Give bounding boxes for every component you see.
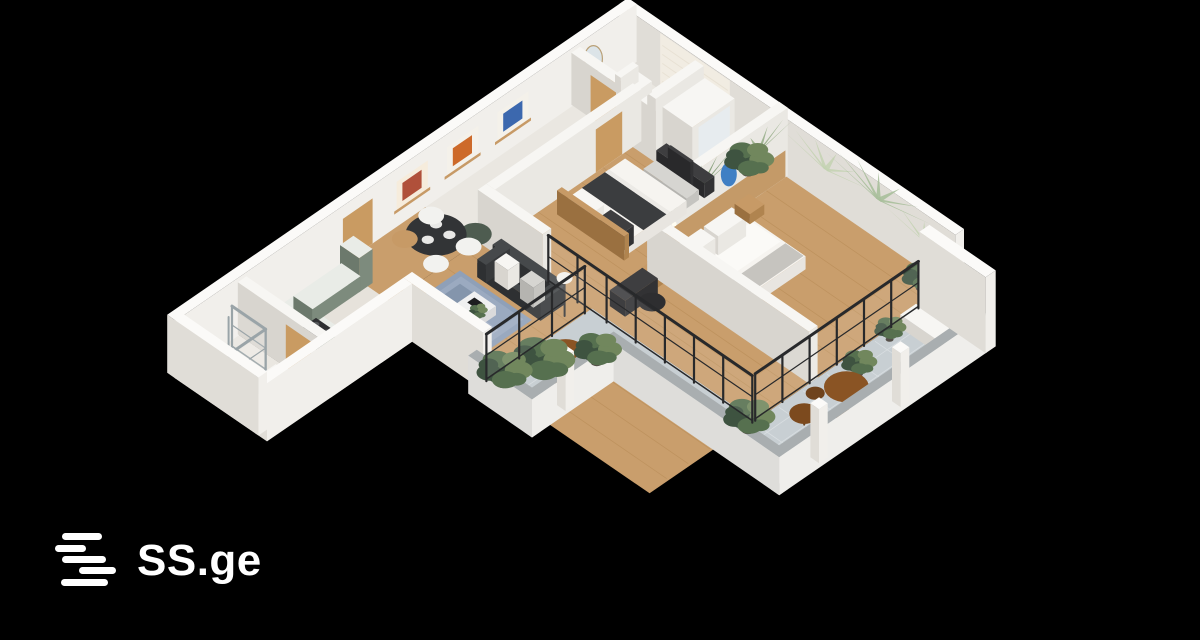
ss-stacked-lines-icon — [55, 531, 121, 591]
brand-logo-text: SS.ge — [137, 531, 262, 591]
logo-bar — [61, 579, 108, 586]
screenshot-root: SS.ge — [0, 0, 1200, 640]
brand-logo[interactable]: SS.ge — [55, 531, 262, 591]
logo-bar — [79, 567, 116, 574]
logo-bar — [55, 545, 86, 552]
logo-bar — [62, 533, 102, 540]
logo-bar — [62, 556, 106, 563]
